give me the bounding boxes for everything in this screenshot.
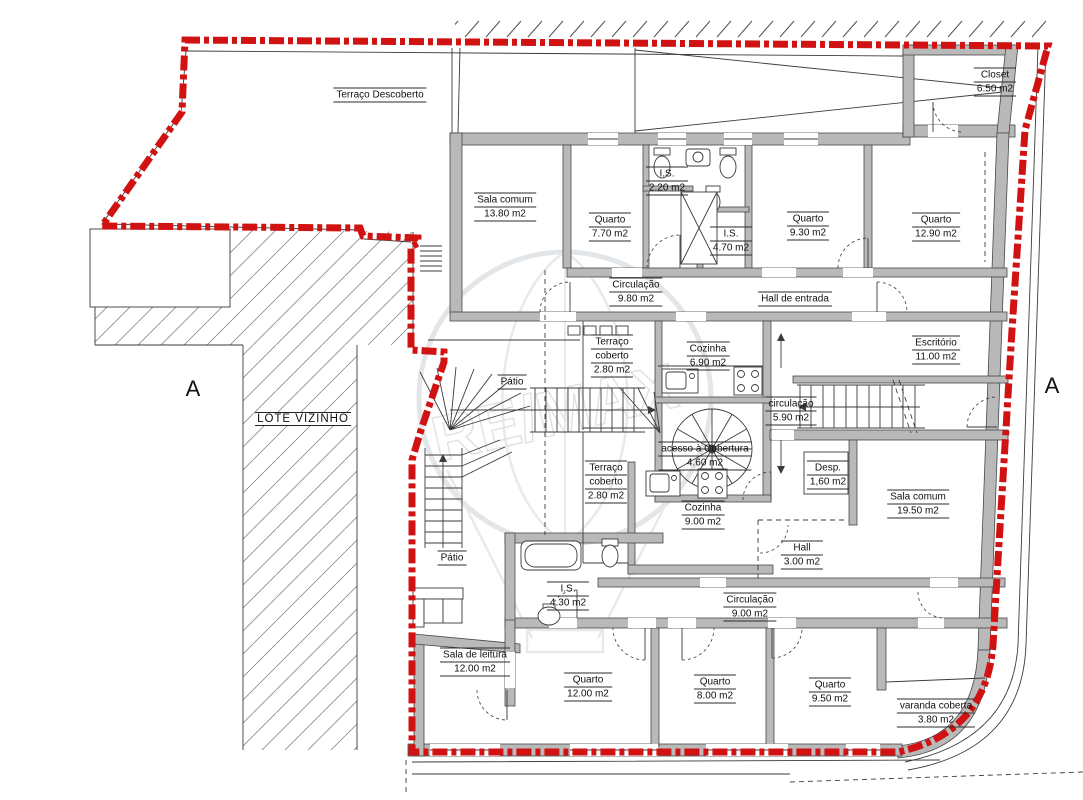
room-label-desp: Desp.1,60 m2 (807, 461, 849, 490)
room-label-quarto-770: Quarto7.70 m2 (589, 213, 631, 242)
room-label-terraco-coberto-2: Terraçocoberto2.80 m2 (585, 461, 627, 504)
room-label-quarto-800: Quarto8.00 m2 (694, 675, 736, 704)
room-label-acesso-cobertura: acesso à Cobertura4.60 m2 (658, 442, 751, 471)
room-label-quarto-950: Quarto9.50 m2 (809, 678, 851, 707)
room-label-patio-2: Pátio (438, 551, 467, 566)
room-label-cozinha-900: Cozinha9.00 m2 (682, 501, 725, 530)
floorplan-canvas: RE/MAX (0, 0, 1083, 800)
room-label-hall-300: Hall3.00 m2 (781, 541, 823, 570)
room-label-quarto-1290: Quarto12.90 m2 (912, 213, 960, 242)
room-label-is-220: I.S.2.20 m2 (646, 167, 688, 196)
room-label-circulacao-980: Circulação9.80 m2 (609, 278, 662, 307)
room-label-sala-comum-2: Sala comum19.50 m2 (887, 490, 949, 519)
room-label-cozinha-690: Cozinha6.90 m2 (687, 342, 730, 371)
room-label-patio-1: Pátio (498, 375, 527, 390)
room-label-closet: Closet6.50 m2 (974, 68, 1016, 97)
watermark-text: RE/MAX (425, 349, 684, 475)
room-label-circulacao-590: circulação5.90 m2 (765, 397, 816, 426)
section-marker-left: A (186, 376, 201, 401)
floorplan-drawing: RE/MAX (0, 0, 1083, 800)
neighbor-lot-label: LOTE VIZINHO (255, 412, 351, 426)
room-label-terraco-descoberto: Terraço Descoberto (333, 88, 426, 103)
room-label-quarto-1200: Quarto12.00 m2 (564, 673, 612, 702)
room-label-varanda: varanda coberta3.80 m2 (897, 699, 975, 728)
room-label-terraco-coberto-1: Terraçocoberto2.80 m2 (591, 335, 633, 378)
room-label-escritorio: Escritório11.00 m2 (912, 336, 960, 365)
room-label-quarto-930: Quarto9.30 m2 (787, 212, 829, 241)
room-label-circulacao-900: Circulação9.00 m2 (723, 593, 776, 622)
room-label-is-430: I.S.4.30 m2 (547, 582, 589, 611)
room-label-is-470: I.S.4.70 m2 (710, 227, 752, 256)
room-label-hall-entrada: Hall de entrada (758, 292, 832, 307)
room-label-sala-comum-1: Sala comum13.80 m2 (474, 193, 536, 222)
section-marker-right: A (1045, 373, 1060, 398)
room-label-sala-leitura: Sala de leitura12.00 m2 (440, 648, 510, 677)
